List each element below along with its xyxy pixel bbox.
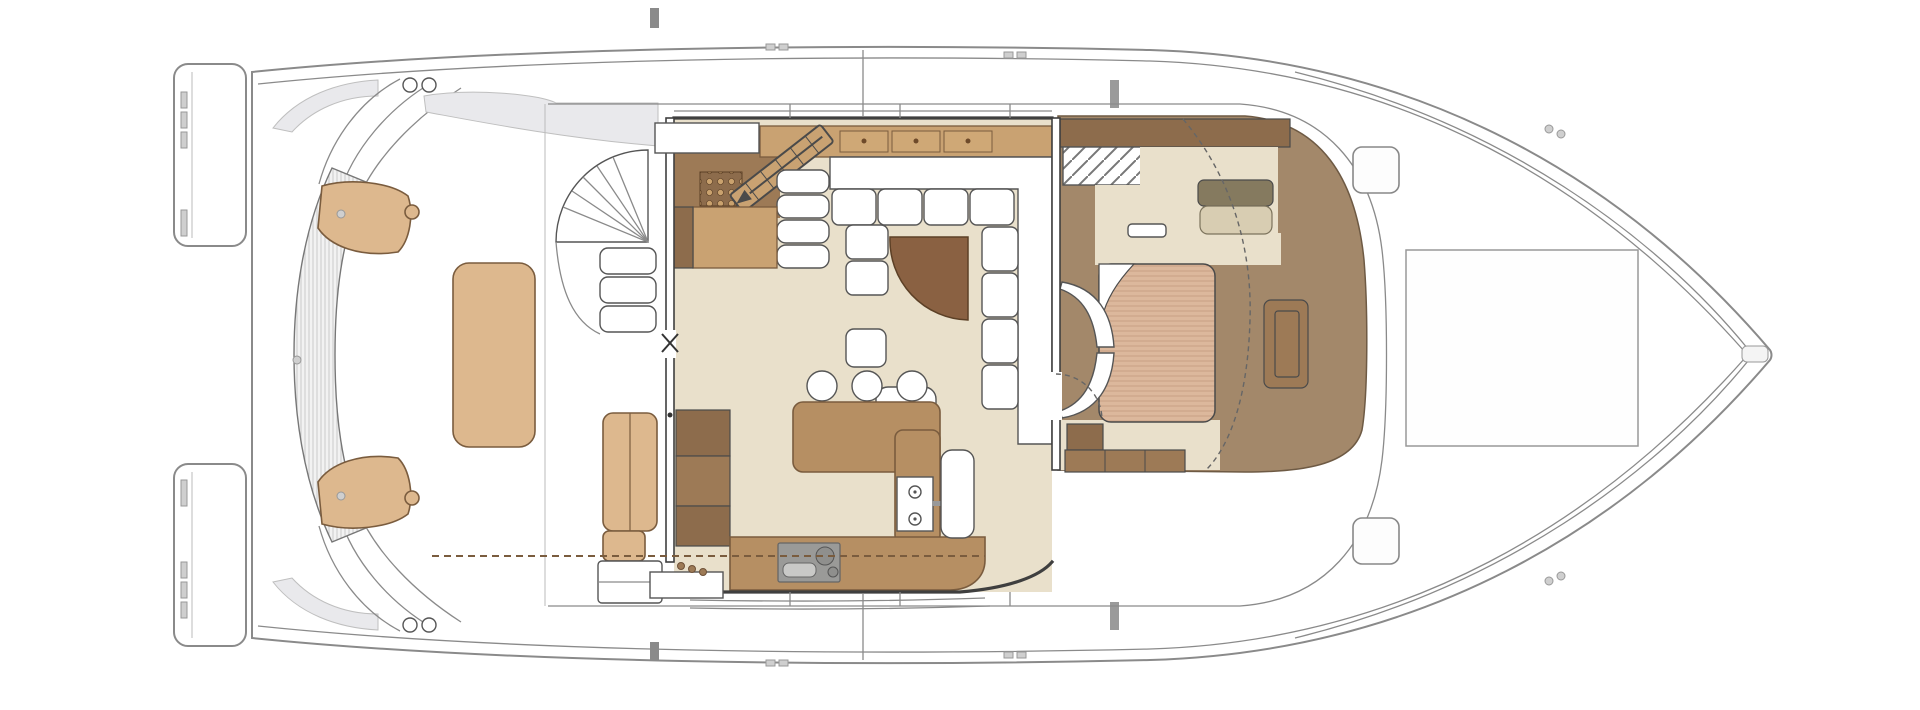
port-swim-platform: [174, 64, 246, 246]
dressing-floor-3: [1095, 233, 1281, 265]
cabinet-under-stairs: [693, 207, 777, 268]
deck-hatch-port: [1353, 147, 1399, 193]
mast-fitting-top: [650, 8, 659, 28]
anchor-fitting: [1742, 346, 1768, 362]
cockpit-table: [453, 263, 535, 447]
deck-hatch-starboard: [1353, 518, 1399, 564]
master-cabin: [1050, 116, 1367, 472]
sun-pad-outline: [1406, 250, 1638, 446]
counter-end-seat: [941, 450, 974, 538]
mirrored-locker: [1063, 147, 1141, 185]
sideboard-drawers: [840, 131, 992, 152]
bottom-door-panel: [650, 572, 723, 598]
bar-stools: [807, 371, 927, 401]
yacht-deck-plan-canvas: [0, 0, 1920, 710]
dressing-seat: [1198, 180, 1273, 234]
starboard-swim-platform: [174, 464, 246, 646]
mast-fitting-bottom: [650, 642, 659, 660]
deck-plan-svg: [0, 0, 1920, 710]
foot-bench: [1264, 300, 1308, 388]
salon-galley: [650, 104, 1052, 609]
bench-fitting-2: [337, 210, 345, 218]
bench-corner-knob-bottom: [405, 491, 419, 505]
bench-corner-knob-top: [405, 205, 419, 219]
bench-fitting-3: [337, 492, 345, 500]
open-door-panel: [655, 123, 759, 153]
cooktop-module: [897, 477, 933, 531]
cabinet-slim: [674, 207, 693, 268]
nightstand: [1067, 424, 1103, 450]
bench-fitting-1: [293, 356, 301, 364]
side-shelf: [1128, 224, 1166, 237]
mattress: [1099, 264, 1215, 422]
tall-cabinets: [676, 410, 730, 546]
wardrobe: [1060, 119, 1290, 147]
aft-galley-counter: [730, 537, 985, 590]
storage-cabinets: [1065, 450, 1185, 472]
